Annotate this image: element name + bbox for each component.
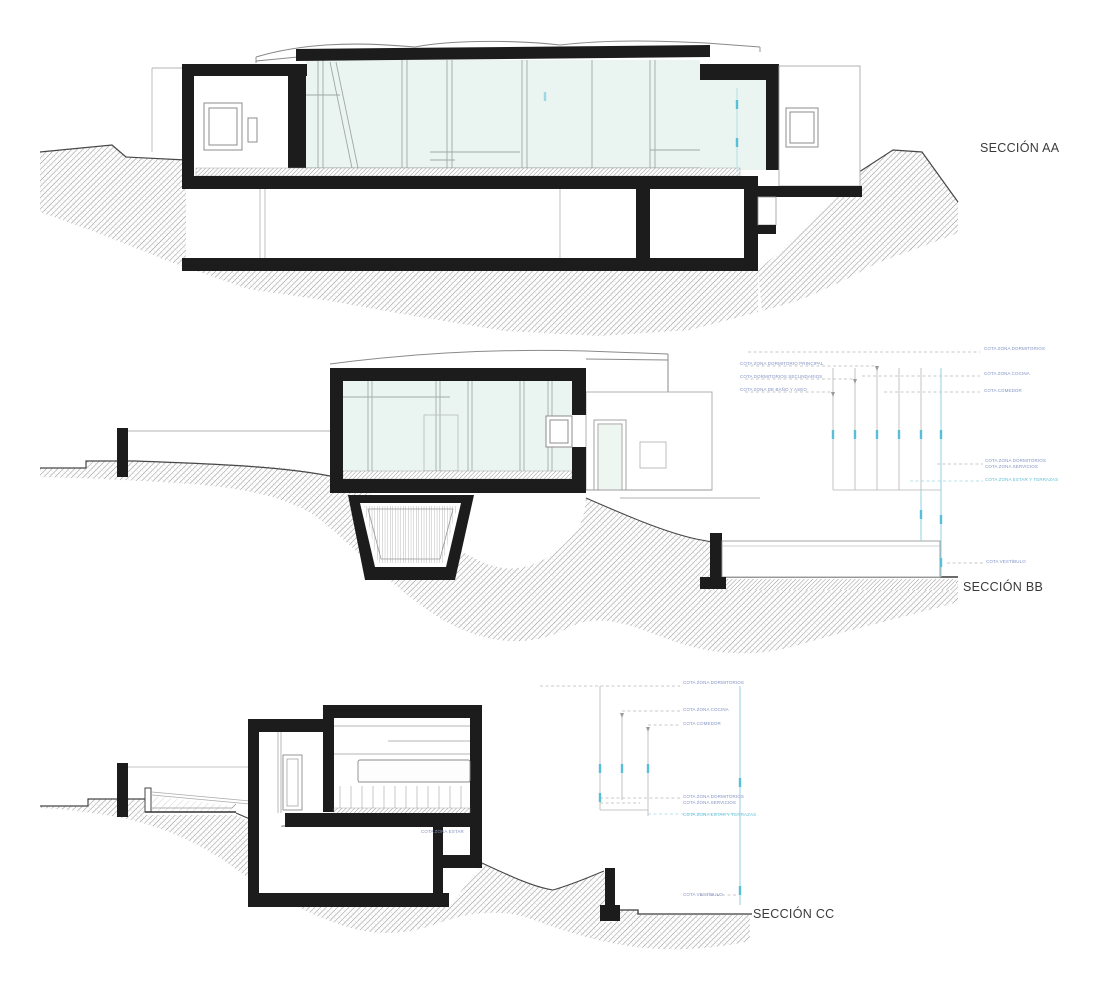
wall-cut [744,189,758,271]
post-cut [117,763,128,817]
roof-slab [323,705,482,718]
footing-step [758,197,776,225]
annotation-label: COTA DORMITORIOS SECUNDARIOS [740,375,822,380]
wall-cut [330,368,343,493]
annotation-label: COTA ZONA ESTAR Y TERRAZAS [683,813,756,818]
foundation-hatch [364,506,457,563]
floor-slab [285,813,482,827]
roof-slab [330,368,586,381]
wall-cut [572,447,586,493]
glazing-panel [700,80,766,170]
section-bb-drawing [40,350,985,653]
wall-cut [470,705,482,862]
parapet-line [152,68,182,152]
step-slab [437,855,482,868]
annotation-label: COTA ZONA DORMITORIOS [683,681,744,686]
annotation-label: COTA VESTÍBULO [683,893,723,898]
terrace-hatch-band [700,579,956,590]
floor-screed-hatch [343,471,572,479]
footing [700,577,726,589]
annotation-label: COTA ZONA ESTAR Y TERRAZAS [985,478,1058,483]
basement-interior [194,189,744,258]
annotation-label: COTA ZONA DORMITORIO PRINCIPAL [740,362,824,367]
floor-slab [182,176,758,189]
glazed-door [599,425,621,489]
post-footing [600,905,620,921]
annotation-label: COTA ZONA SERVICIOS [683,801,736,806]
annotation-label: COTA VESTÍBULO [986,560,1026,565]
window [786,108,818,147]
foundation-slab [182,258,758,271]
glazing-panel [306,60,700,170]
wall-cut [182,64,194,189]
sections-drawing [0,0,1100,1001]
annotation-label: COTA ZONA COCINA [984,372,1030,377]
foundation-slab [248,893,449,907]
wall-cut [248,719,259,905]
canopy-slab [700,64,779,80]
basin-lip [145,788,151,812]
section-aa-drawing [40,41,958,336]
counter-elevation [358,760,470,782]
footing-step-slab [758,225,776,234]
wall-cut [766,80,779,170]
annotation-label: COTA COMEDOR [683,722,721,727]
section-aa-title: SECCIÓN AA [980,141,1059,155]
floor-screed-hatch [196,168,740,176]
annotation-label: COTA ZONA DORMITORIOS [984,347,1045,352]
annotation-label: COTA ZONA SERVICIOS [985,465,1038,470]
roof-slab [296,45,710,61]
architectural-sections-sheet: SECCIÓN AA SECCIÓN BB SECCIÓN CC COTA ZO… [0,0,1100,1001]
section-cc-drawing [40,686,752,949]
roof-slab [248,719,330,732]
annotation-label: COTA COMEDOR [984,389,1022,394]
wall-cut [572,368,586,415]
floor-slab [330,479,586,493]
annotation-label: COTA ZONA ESTAR [421,830,464,835]
wall-cut [288,64,306,176]
section-cc-title: SECCIÓN CC [753,907,834,921]
lower-room-interior [259,827,433,893]
wall-cut [636,189,650,258]
wall-cut [323,705,334,812]
post-cut [117,428,128,477]
annotation-label: COTA ZONA DE BAÑO Y ASEO [740,388,807,393]
glazing-panel [343,381,572,471]
annotation-label: COTA ZONA COCINA [683,708,729,713]
deck-volume [722,541,940,577]
window [546,416,572,447]
section-bb-title: SECCIÓN BB [963,580,1043,594]
